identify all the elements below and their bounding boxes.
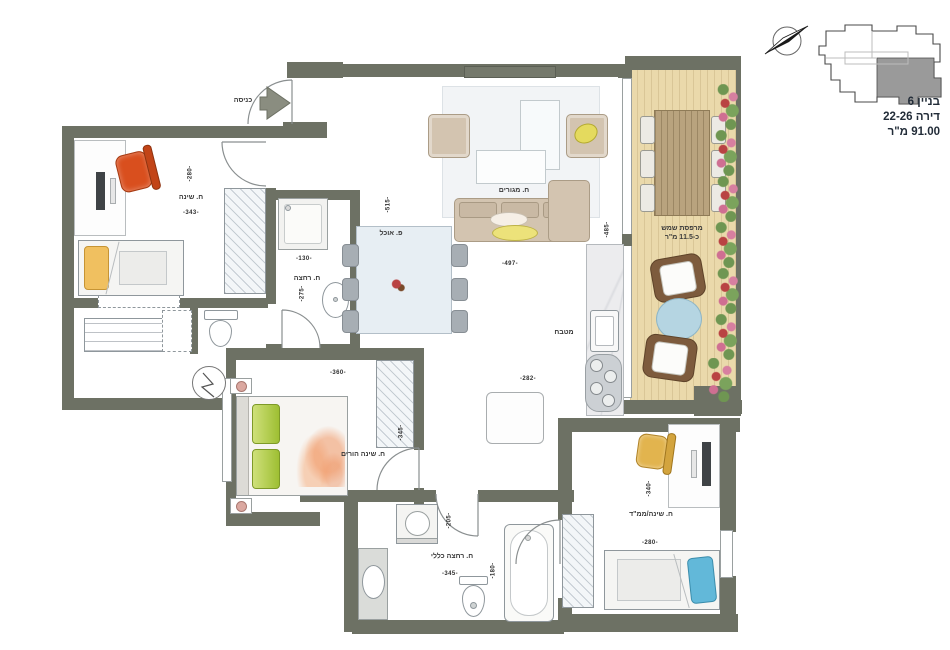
wall-segment <box>720 418 736 532</box>
nightstand <box>230 498 252 514</box>
wall-segment <box>352 620 564 634</box>
dim-kitchen-w: -282- <box>506 375 550 384</box>
wall-segment <box>62 126 294 138</box>
tv-console <box>464 66 556 78</box>
wardrobe <box>376 360 414 448</box>
dim-dining-v: -515- <box>385 183 394 227</box>
building-number: בניין 6 <box>800 95 940 110</box>
wall-segment <box>320 344 358 354</box>
keyboard <box>691 450 697 478</box>
sink <box>362 565 385 599</box>
pillow-green <box>252 449 280 489</box>
dim-living-h: -485- <box>604 208 613 252</box>
dim-master-h: -345- <box>398 411 407 455</box>
cooktop <box>585 354 622 412</box>
building-key-plan <box>819 25 941 104</box>
wall-segment <box>62 126 74 410</box>
kitchen-sink <box>590 310 619 352</box>
washing-machine <box>396 504 438 544</box>
window-sill <box>98 295 180 308</box>
wall-segment <box>226 512 320 526</box>
computer-monitor <box>702 442 711 486</box>
room-label-bathroom2: ח. רחצה כללי <box>422 552 482 561</box>
vanity-counter <box>358 548 388 620</box>
dining-chair <box>451 244 468 267</box>
dining-chair <box>451 310 468 333</box>
pillow-green <box>252 404 280 444</box>
dim-bathroom2-v1: -205- <box>446 499 455 543</box>
apartment-area: 91.00 מ"ר <box>800 125 940 140</box>
lounge-chair <box>641 333 699 384</box>
dim-mamad-v: -340- <box>646 467 655 511</box>
office-chair <box>631 427 679 476</box>
pillow <box>84 246 109 290</box>
wall-segment <box>558 614 738 632</box>
shaft <box>162 310 192 352</box>
dim-master-w: -360- <box>316 369 360 378</box>
planter-flowers <box>716 84 740 130</box>
room-label-master: ח. שינה הורים <box>334 450 392 459</box>
dim-bathroom1-h: -130- <box>282 255 326 264</box>
outdoor-chair <box>640 184 655 212</box>
single-bed <box>604 550 720 610</box>
planter-flowers <box>714 314 738 360</box>
dim-living-w: -497- <box>488 260 532 269</box>
compass-icon <box>765 26 808 55</box>
round-table <box>656 298 702 340</box>
room-label-dining: פ. אוכל <box>368 229 414 238</box>
wall-segment <box>618 400 742 414</box>
outdoor-chair <box>640 150 655 178</box>
outdoor-table <box>654 110 710 216</box>
outdoor-chair <box>640 116 655 144</box>
dim-mamad-w: -280- <box>628 539 672 548</box>
bathtub <box>504 524 554 622</box>
pillow-yellow <box>492 225 538 241</box>
planter-flowers <box>714 130 738 176</box>
wall-segment <box>625 56 741 70</box>
wall-segment <box>266 188 276 304</box>
single-bed <box>78 240 184 296</box>
dim-bathroom2-w: -345- <box>428 570 472 579</box>
wardrobe <box>224 188 266 294</box>
entrance-label: כניסה <box>226 96 260 105</box>
sofa-chaise <box>548 180 590 242</box>
balcony-area: כ-11.5 מ"ר <box>665 234 699 241</box>
coffee-table <box>476 150 546 184</box>
wall-segment <box>414 358 424 450</box>
pillow-blue <box>687 556 718 604</box>
shower <box>278 198 328 250</box>
dining-chair <box>342 244 359 267</box>
lounge-chair <box>649 252 708 304</box>
flower-centerpiece <box>390 278 406 293</box>
entrance-arrow-icon <box>260 87 290 119</box>
nightstand <box>230 378 252 394</box>
window <box>720 530 733 578</box>
dining-chair <box>342 278 359 301</box>
planter-flowers <box>716 268 740 314</box>
kitchen-island <box>486 392 544 444</box>
wall-segment <box>618 64 632 78</box>
room-label-mamad: ח. שינה/ממ"ד <box>620 510 682 519</box>
floor-plan: כניסה -280- ח. שינה -343- -130- ח. רחצה … <box>0 0 950 650</box>
dim-bedroom1-h: -343- <box>169 209 213 218</box>
dining-chair <box>451 278 468 301</box>
balcony-glass-wall <box>622 78 632 236</box>
toilet <box>458 576 490 620</box>
dim-bathroom2-v2: -180- <box>490 549 499 593</box>
room-label-living: ח. מגורים <box>488 186 540 195</box>
planter-flowers <box>704 358 736 402</box>
planter-flowers <box>714 222 738 268</box>
balcony-name: מרפסת שמש <box>661 225 703 232</box>
floral-blanket <box>289 407 345 487</box>
dim-bathroom1-v: -275- <box>299 272 308 316</box>
dining-chair <box>342 310 359 333</box>
apartment-number: דירה 22-26 <box>800 110 940 125</box>
dim-bedroom1-v: -280- <box>187 152 196 196</box>
wall-segment <box>344 500 358 632</box>
wall-segment <box>558 418 572 520</box>
electric-panel <box>192 366 226 400</box>
apartment-info: בניין 6 דירה 22-26 91.00 מ"ר <box>800 95 940 140</box>
room-label-balcony: מרפסת שמש כ-11.5 מ"ר <box>650 224 714 242</box>
room-label-bedroom1: ח. שינה <box>168 193 214 202</box>
wardrobe <box>562 514 594 608</box>
computer-monitor <box>96 172 105 210</box>
planter-flowers <box>716 176 740 222</box>
wall-segment <box>266 344 282 354</box>
room-label-kitchen: מטבח <box>546 328 582 337</box>
double-bed <box>236 396 348 496</box>
toilet <box>202 310 240 350</box>
armchair <box>428 114 470 158</box>
